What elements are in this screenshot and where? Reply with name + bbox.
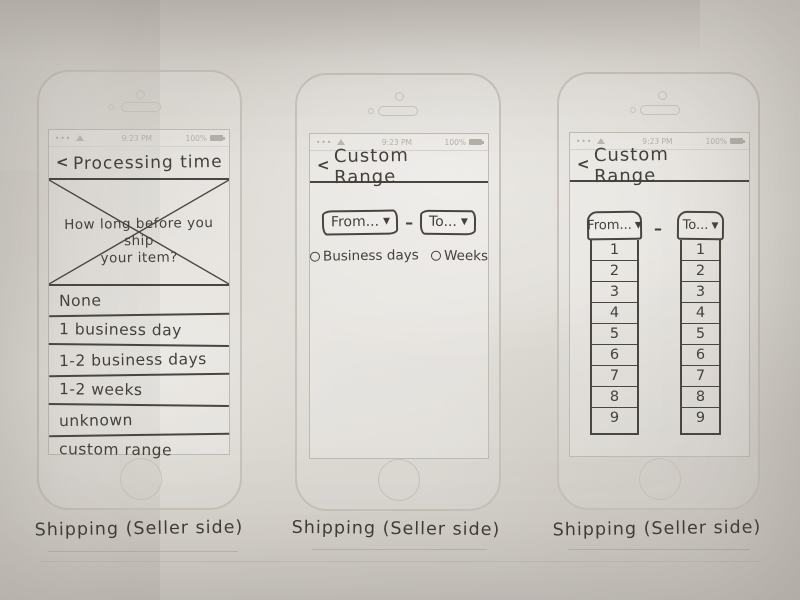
speaker-icon — [640, 105, 680, 115]
from-option[interactable]: 8 — [592, 387, 637, 408]
speaker-icon — [121, 102, 161, 112]
unit-radio-row: Business days Weeks — [310, 248, 488, 264]
battery-icon — [210, 135, 223, 141]
screen-custom-range-open: ••• 9:23 PM 100% < Custom Range From... … — [569, 132, 750, 457]
signal-dots-icon: ••• — [316, 138, 332, 147]
to-option[interactable]: 4 — [682, 303, 719, 324]
guide-line — [312, 549, 487, 550]
paper-crease — [0, 0, 700, 60]
page-title: Custom Range — [593, 143, 749, 187]
from-option[interactable]: 5 — [592, 324, 637, 345]
to-option[interactable]: 6 — [682, 345, 719, 366]
camera-icon — [658, 91, 667, 100]
from-dropdown[interactable]: From... ▼ — [322, 209, 398, 235]
nav-header: < Custom Range — [310, 151, 488, 183]
from-options-list: 1 2 3 4 5 6 7 8 9 — [590, 240, 639, 435]
wifi-icon — [337, 139, 345, 145]
signal-dots-icon: ••• — [576, 137, 592, 146]
camera-icon — [136, 90, 145, 99]
caption-phone-3: Shipping (Seller side) — [507, 517, 800, 541]
caption-phone-2: Shipping (Seller side) — [246, 517, 546, 540]
nav-header: < Processing time — [49, 147, 229, 180]
from-dropdown-label: From... — [331, 214, 379, 231]
to-option[interactable]: 7 — [682, 366, 719, 387]
range-dropdown-row: From... ▼ – To... ▼ — [310, 210, 488, 235]
option-unknown[interactable]: unknown — [49, 405, 229, 438]
option-1-2-business-days[interactable]: 1-2 business days — [49, 345, 229, 378]
to-dropdown[interactable]: To... ▼ — [677, 211, 724, 240]
screen-custom-range-closed: ••• 9:23 PM 100% < Custom Range From... … — [309, 133, 489, 459]
guide-line — [48, 551, 238, 552]
sensor-dot-icon — [108, 104, 114, 110]
guide-line — [568, 549, 750, 550]
question-line-1: How long before you ship — [49, 215, 229, 252]
status-bar: ••• 9:23 PM 100% — [49, 130, 229, 147]
to-option[interactable]: 1 — [682, 240, 719, 261]
from-dropdown-open: From... ▼ 1 2 3 4 5 6 7 8 9 — [587, 211, 642, 435]
range-dash: – — [654, 219, 662, 238]
wifi-icon — [76, 135, 84, 141]
option-1-2-weeks[interactable]: 1-2 weeks — [49, 375, 229, 407]
dropdown-arrow-icon: ▼ — [635, 220, 642, 230]
radio-circle-icon — [431, 251, 441, 261]
to-option[interactable]: 2 — [682, 261, 719, 282]
dropdown-arrow-icon: ▼ — [461, 217, 468, 227]
phone-frame-2: ••• 9:23 PM 100% < Custom Range From... … — [295, 73, 501, 511]
guide-line — [40, 561, 760, 562]
from-dropdown-label: From... — [587, 218, 632, 234]
to-dropdown[interactable]: To... ▼ — [420, 210, 476, 236]
to-option[interactable]: 9 — [682, 408, 719, 428]
to-dropdown-label: To... — [683, 218, 709, 233]
home-button[interactable] — [120, 458, 162, 500]
option-1-business-day[interactable]: 1 business day — [49, 315, 229, 347]
camera-icon — [395, 92, 404, 101]
home-button[interactable] — [378, 459, 420, 501]
page-title: Custom Range — [333, 144, 488, 188]
dropdown-arrow-icon: ▼ — [711, 221, 718, 231]
nav-header: < Custom Range — [570, 150, 749, 182]
to-dropdown-open: To... ▼ 1 2 3 4 5 6 7 8 9 — [677, 211, 724, 435]
to-option[interactable]: 3 — [682, 282, 719, 303]
paper-wireframe-photo: ••• 9:23 PM 100% < Processing time How l… — [0, 0, 800, 600]
range-dash: – — [405, 213, 413, 232]
page-title: Processing time — [72, 151, 222, 173]
to-option[interactable]: 8 — [682, 387, 719, 408]
to-options-list: 1 2 3 4 5 6 7 8 9 — [680, 240, 721, 435]
from-option[interactable]: 7 — [592, 366, 637, 387]
back-chevron-icon[interactable]: < — [570, 155, 594, 175]
speaker-icon — [378, 106, 418, 116]
from-option[interactable]: 3 — [592, 282, 637, 303]
option-none[interactable]: None — [49, 285, 229, 318]
from-option[interactable]: 6 — [592, 345, 637, 366]
phone-frame-3: ••• 9:23 PM 100% < Custom Range From... … — [557, 72, 760, 510]
radio-weeks-label: Weeks — [444, 248, 488, 264]
from-dropdown[interactable]: From... ▼ — [587, 211, 642, 241]
back-chevron-icon[interactable]: < — [310, 156, 334, 176]
screen-processing-time: ••• 9:23 PM 100% < Processing time How l… — [48, 129, 230, 455]
sensor-dot-icon — [368, 108, 374, 114]
from-option[interactable]: 2 — [592, 261, 637, 282]
from-option[interactable]: 4 — [592, 303, 637, 324]
wifi-icon — [597, 138, 605, 144]
back-chevron-icon[interactable]: < — [49, 152, 73, 172]
to-dropdown-label: To... — [429, 214, 457, 230]
phone-frame-1: ••• 9:23 PM 100% < Processing time How l… — [37, 70, 242, 510]
image-placeholder-box: How long before you ship your item? — [49, 180, 229, 286]
home-button[interactable] — [639, 458, 681, 500]
status-time: 9:23 PM — [88, 134, 185, 143]
question-text: How long before you ship your item? — [49, 215, 230, 269]
radio-business-days-label: Business days — [323, 247, 419, 264]
question-line-2: your item? — [49, 249, 229, 269]
radio-business-days[interactable]: Business days — [310, 247, 419, 265]
option-custom-range[interactable]: custom range — [49, 435, 229, 465]
to-option[interactable]: 5 — [682, 324, 719, 345]
battery-percent: 100% — [186, 134, 207, 143]
radio-weeks[interactable]: Weeks — [431, 248, 488, 265]
from-option[interactable]: 9 — [592, 408, 637, 428]
sensor-dot-icon — [630, 107, 636, 113]
from-option[interactable]: 1 — [592, 240, 637, 261]
signal-dots-icon: ••• — [55, 134, 71, 143]
processing-time-options-list: None 1 business day 1-2 business days 1-… — [49, 286, 229, 464]
dropdown-arrow-icon: ▼ — [383, 217, 390, 227]
radio-circle-icon — [310, 252, 320, 262]
